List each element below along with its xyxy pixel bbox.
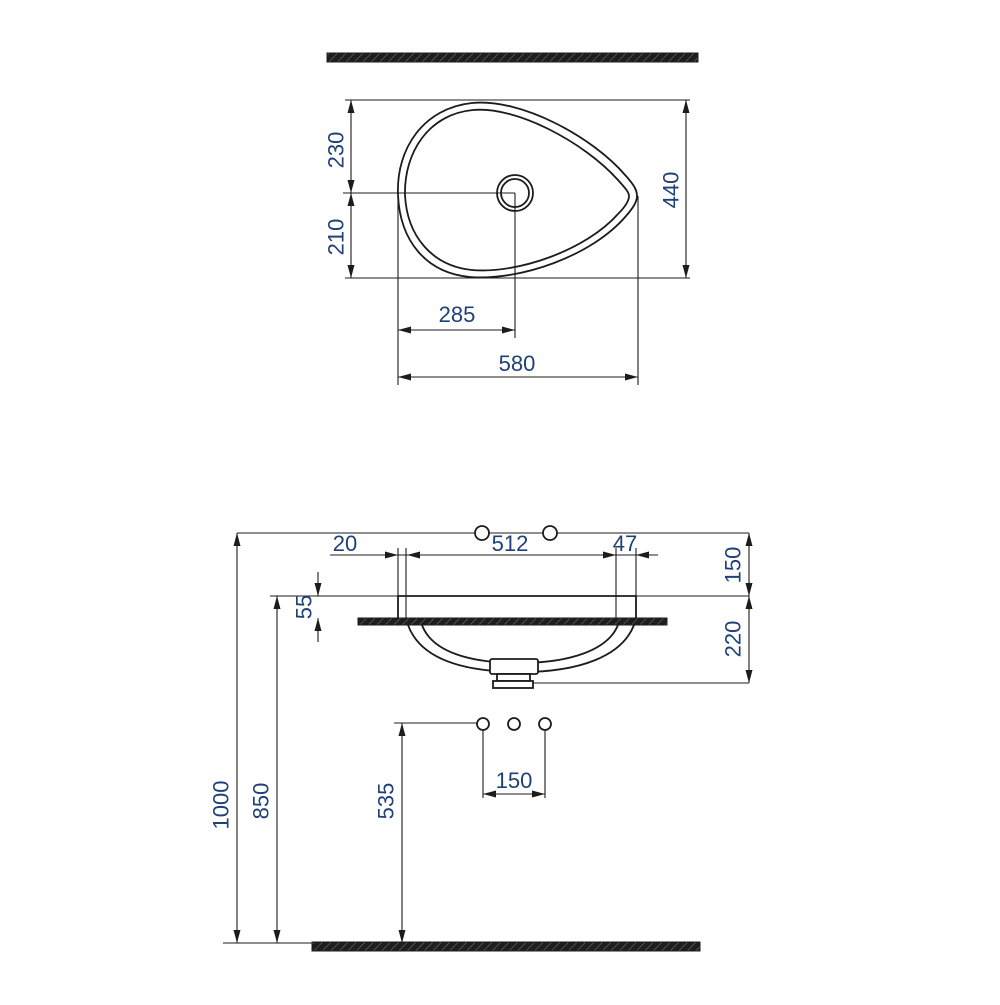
dimension-arrow (532, 791, 545, 798)
dimension-arrow (399, 723, 406, 736)
dim-label-drain-from-back: 230 (324, 132, 349, 169)
supply-hole-circle (539, 718, 551, 730)
dimension-arrow (348, 193, 355, 206)
dimension-arrow (625, 374, 638, 381)
dimension-arrow (746, 596, 753, 609)
dimension-arrow (398, 374, 411, 381)
floor-section-bar (312, 942, 700, 951)
dimension-arrow (348, 100, 355, 113)
drain-fitting-neck (497, 674, 530, 681)
faucet-hole-circle (543, 526, 557, 540)
front-view: 20 512 47 150 220 55 1000 850 535 150 (209, 526, 753, 951)
dim-label-rim-above-counter: 55 (292, 595, 317, 619)
dim-label-supply-spacing: 150 (496, 768, 533, 793)
dimension-arrow (636, 552, 649, 559)
dim-label-drain-from-front: 210 (324, 219, 349, 256)
dim-label-faucet-height: 1000 (209, 781, 234, 830)
dimension-arrow (502, 327, 515, 334)
dimension-arrow (234, 930, 241, 943)
dimension-arrow (348, 180, 355, 193)
dim-label-drain-from-left: 285 (439, 302, 476, 327)
dimension-arrow (348, 265, 355, 278)
wall-section-bar (327, 53, 698, 62)
dimension-arrow (385, 552, 398, 559)
drain-fitting-flange (493, 681, 533, 688)
dimension-arrow (274, 596, 281, 609)
dimension-arrow (746, 583, 753, 596)
dimension-arrow (746, 533, 753, 546)
dimension-arrow (407, 552, 420, 559)
dim-label-rim-to-cutout-left: 20 (333, 531, 357, 556)
dimension-arrow (315, 583, 322, 596)
dim-label-overall-width: 580 (499, 351, 536, 376)
dimension-arrow (234, 533, 241, 546)
drain-fitting-body (490, 659, 538, 674)
dimension-arrow (746, 670, 753, 683)
dimension-arrow (274, 930, 281, 943)
dim-label-overall-depth: 440 (659, 172, 684, 209)
dim-label-supply-height: 535 (374, 783, 399, 820)
technical-drawing-page: 230 210 440 285 580 (0, 0, 1000, 1000)
basin-outer-outline (398, 103, 637, 278)
bowl-inner-wall (422, 625, 618, 663)
faucet-hole-circle (475, 526, 489, 540)
basin-inner-outline (405, 110, 629, 271)
ceramic-rim-outline (398, 596, 636, 618)
dimension-arrow (399, 930, 406, 943)
washbasin-dimension-drawing: 230 210 440 285 580 (0, 0, 1000, 1000)
supply-hole-circle (508, 718, 520, 730)
dimension-arrow (398, 327, 411, 334)
dim-label-rim-height: 850 (249, 783, 274, 820)
countertop-section-bar (358, 618, 667, 625)
dim-label-cutout-to-rim-right: 47 (613, 531, 637, 556)
plan-view: 230 210 440 285 580 (324, 53, 699, 385)
supply-hole-circle (477, 718, 489, 730)
dimension-arrow (683, 100, 690, 113)
dim-label-faucet-above-rim: 150 (721, 547, 746, 584)
dimension-arrow (683, 265, 690, 278)
dim-label-basin-depth-below-rim: 220 (721, 621, 746, 658)
dimension-arrow (483, 791, 496, 798)
dim-label-cutout-width: 512 (492, 531, 529, 556)
